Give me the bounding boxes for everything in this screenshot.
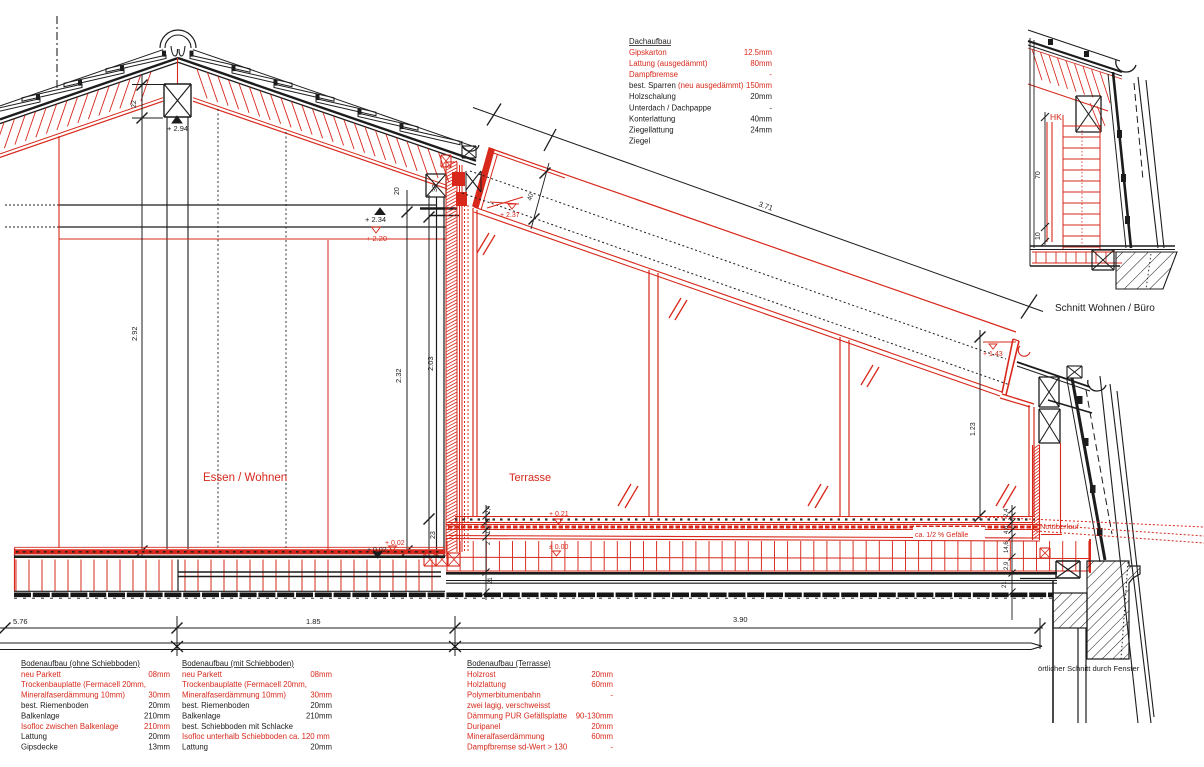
svg-text:best. Riemenboden: best. Riemenboden: [182, 701, 250, 710]
svg-text:neu Parkett: neu Parkett: [21, 670, 62, 679]
svg-text:Lattung: Lattung: [182, 743, 208, 752]
svg-text:20mm: 20mm: [310, 701, 332, 710]
svg-text:Trockenbauplatte (Fermacell 20: Trockenbauplatte (Fermacell 20mm,: [21, 680, 146, 689]
svg-text:20mm: 20mm: [148, 732, 170, 741]
svg-text:20mm: 20mm: [591, 670, 613, 679]
svg-text:Ziegel: Ziegel: [629, 137, 651, 146]
svg-text:12.5mm: 12.5mm: [744, 48, 772, 57]
svg-text:3.90: 3.90: [733, 615, 748, 624]
svg-text:Holzlattung: Holzlattung: [467, 680, 506, 689]
svg-text:-: -: [769, 103, 772, 112]
svg-text:+ 2.37: + 2.37: [500, 212, 520, 219]
svg-text:08mm: 08mm: [148, 670, 170, 679]
svg-text:08mm: 08mm: [310, 670, 332, 679]
svg-text:+ 2.94: + 2.94: [167, 124, 188, 133]
svg-text:Holzschalung: Holzschalung: [629, 92, 676, 101]
svg-text:Isofloc unterhalb Schiebboden: Isofloc unterhalb Schiebboden ca. 120 mm: [182, 732, 330, 741]
svg-text:10: 10: [1035, 232, 1042, 240]
svg-text:80mm: 80mm: [750, 59, 772, 68]
svg-text:90-130mm: 90-130mm: [576, 711, 613, 720]
svg-text:60mm: 60mm: [591, 680, 613, 689]
svg-text:ca. 1/2 % Gefälle: ca. 1/2 % Gefälle: [915, 532, 968, 539]
svg-text:Dampfbremse sd-Wert > 130: Dampfbremse sd-Wert > 130: [467, 743, 568, 752]
svg-text:14,6: 14,6: [1004, 541, 1010, 553]
svg-text:30mm: 30mm: [148, 691, 170, 700]
svg-text:20mm: 20mm: [750, 92, 772, 101]
svg-text:20mm: 20mm: [148, 701, 170, 710]
svg-text:20mm: 20mm: [591, 722, 613, 731]
svg-text:Holzrost: Holzrost: [467, 670, 496, 679]
svg-text:Mineralfaserdämmung: Mineralfaserdämmung: [467, 732, 545, 741]
svg-text:Konterlattung: Konterlattung: [629, 114, 675, 123]
svg-text:13: 13: [486, 527, 492, 534]
svg-text:2.92: 2.92: [130, 326, 139, 341]
svg-text:Gipsdecke: Gipsdecke: [21, 743, 58, 752]
svg-text:24mm: 24mm: [750, 126, 772, 135]
svg-text:Dachaufbau: Dachaufbau: [629, 37, 671, 46]
svg-text:Bodenaufbau (ohne Schiebboden): Bodenaufbau (ohne Schiebboden): [21, 659, 140, 668]
svg-text:neu Parkett: neu Parkett: [182, 670, 223, 679]
svg-text:Lattung (ausgedämmt): Lattung (ausgedämmt): [629, 59, 708, 68]
svg-text:40mm: 40mm: [750, 114, 772, 123]
svg-text:1.85: 1.85: [306, 617, 321, 626]
svg-text:Dämmung PUR Gefällsplatte: Dämmung PUR Gefällsplatte: [467, 711, 567, 720]
svg-text:210mm: 210mm: [144, 711, 170, 720]
svg-text:21: 21: [1002, 581, 1008, 588]
svg-text:+ 2.20: + 2.20: [366, 234, 387, 243]
svg-text:örtlicher Schnitt durch Fenste: örtlicher Schnitt durch Fenster: [1038, 664, 1140, 673]
svg-text:Bodenaufbau (mit Schiebboden): Bodenaufbau (mit Schiebboden): [182, 659, 294, 668]
svg-text:20: 20: [394, 187, 401, 195]
svg-text:Terrasse: Terrasse: [509, 472, 551, 484]
svg-text:Schnitt Wohnen / Büro: Schnitt Wohnen / Büro: [1055, 303, 1155, 314]
svg-text:Isofloc zwischen Balkenlage: Isofloc zwischen Balkenlage: [21, 722, 119, 731]
svg-text:Mineralfaserdämmung 10mm): Mineralfaserdämmung 10mm): [182, 691, 286, 700]
svg-text:Essen / Wohnen: Essen / Wohnen: [203, 472, 287, 484]
svg-text:21: 21: [488, 577, 494, 584]
svg-text:Notüberlauf: Notüberlauf: [1040, 522, 1080, 531]
svg-text:2,4: 2,4: [486, 505, 492, 514]
svg-text:Trockenbauplatte (Fermacell 20: Trockenbauplatte (Fermacell 20mm,: [182, 680, 307, 689]
svg-text:20mm: 20mm: [310, 743, 332, 752]
svg-text:4,6: 4,6: [1004, 525, 1010, 534]
svg-text:Ziegellattung: Ziegellattung: [629, 126, 674, 135]
svg-text:Bodenaufbau (Terrasse): Bodenaufbau (Terrasse): [467, 659, 551, 668]
svg-text:Polymerbitumenbahn: Polymerbitumenbahn: [467, 691, 541, 700]
svg-text:210mm: 210mm: [306, 711, 332, 720]
svg-text:+ 2.34: + 2.34: [365, 215, 386, 224]
svg-text:Dampfbremse: Dampfbremse: [629, 70, 678, 79]
svg-text:+ 1.43: + 1.43: [983, 351, 1003, 358]
svg-text:210mm: 210mm: [144, 722, 170, 731]
svg-text:Mineralfaserdämmung 10mm): Mineralfaserdämmung 10mm): [21, 691, 125, 700]
svg-text:22: 22: [131, 100, 138, 108]
svg-text:70: 70: [1035, 171, 1042, 179]
svg-text:Unterdach / Dachpappe: Unterdach / Dachpappe: [629, 103, 711, 112]
svg-text:38: 38: [432, 184, 439, 192]
svg-text:5.76: 5.76: [13, 617, 28, 626]
svg-text:Balkenlage: Balkenlage: [21, 711, 60, 720]
svg-text:1.23: 1.23: [970, 422, 977, 436]
svg-text:best. Schiebboden mit Schlacke: best. Schiebboden mit Schlacke: [182, 722, 293, 731]
svg-text:zwei lagig, verschweisst: zwei lagig, verschweisst: [467, 701, 551, 710]
svg-text:2.32: 2.32: [394, 368, 403, 383]
svg-text:Gipskarton: Gipskarton: [629, 48, 667, 57]
svg-text:2,9: 2,9: [1004, 561, 1010, 570]
svg-text:Balkenlage: Balkenlage: [182, 711, 221, 720]
svg-text:best. Riemenboden: best. Riemenboden: [21, 701, 89, 710]
svg-text:Lattung: Lattung: [21, 732, 47, 741]
svg-text:2,4: 2,4: [1004, 508, 1010, 517]
svg-text:30mm: 30mm: [310, 691, 332, 700]
svg-text:-: -: [769, 70, 772, 79]
svg-text:13mm: 13mm: [148, 743, 170, 752]
svg-text:2.03: 2.03: [426, 356, 435, 371]
svg-text:-: -: [610, 743, 613, 752]
svg-text:150mm: 150mm: [746, 81, 772, 90]
svg-text:Duripanel: Duripanel: [467, 722, 501, 731]
svg-text:60mm: 60mm: [591, 732, 613, 741]
svg-text:best. Sparren (neu ausgedämmt): best. Sparren (neu ausgedämmt): [629, 81, 744, 90]
svg-text:+ 0.21: + 0.21: [549, 511, 569, 518]
svg-text:HK: HK: [1050, 112, 1062, 122]
svg-text:-: -: [610, 691, 613, 700]
